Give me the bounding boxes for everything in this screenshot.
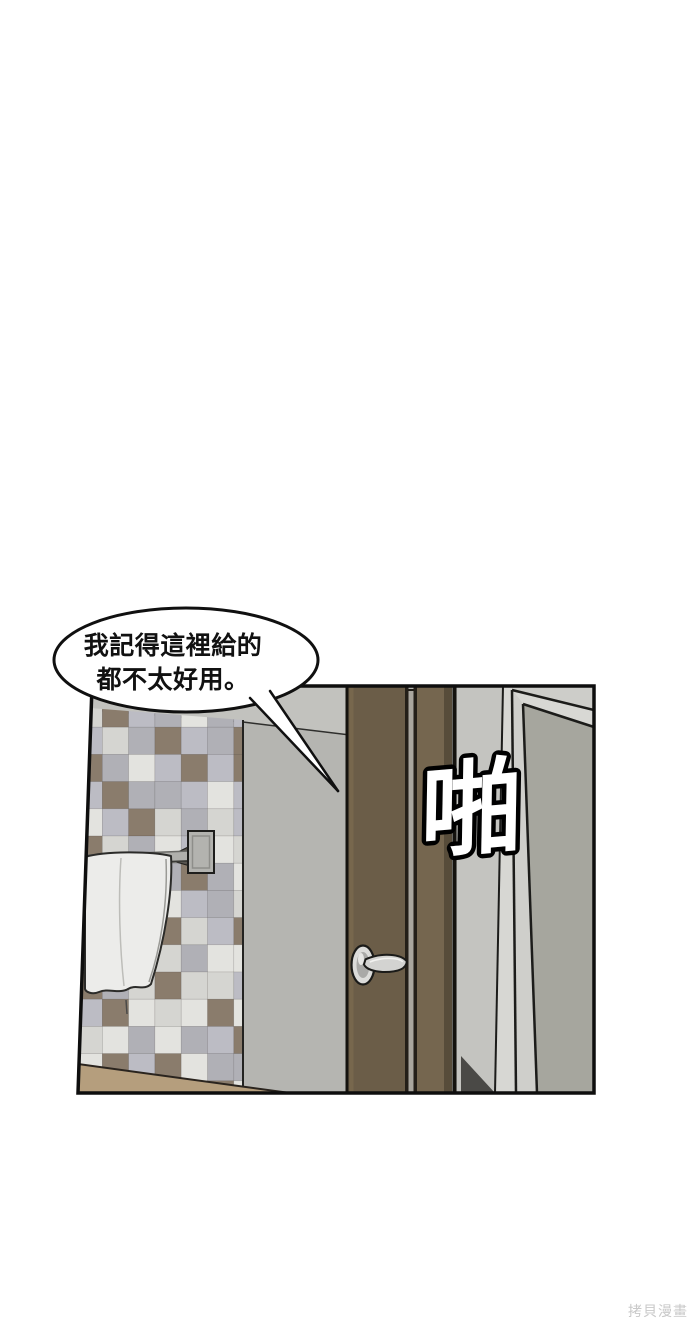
tile bbox=[181, 1108, 207, 1135]
tile bbox=[155, 727, 181, 754]
tile bbox=[181, 999, 207, 1026]
tile bbox=[208, 1026, 234, 1053]
sfx-text: 啪 bbox=[420, 746, 524, 874]
tile bbox=[181, 890, 207, 917]
tile bbox=[155, 999, 181, 1026]
tile bbox=[102, 727, 128, 754]
tile bbox=[181, 754, 207, 781]
tile bbox=[181, 1054, 207, 1081]
tile bbox=[155, 1026, 181, 1053]
door bbox=[347, 686, 455, 1093]
tile bbox=[208, 890, 234, 917]
door-frame-edge bbox=[444, 686, 452, 1093]
tile bbox=[208, 918, 234, 945]
tile bbox=[102, 999, 128, 1026]
tile bbox=[129, 782, 155, 809]
tile bbox=[129, 754, 155, 781]
open-doorway bbox=[457, 686, 594, 1093]
door-frame-strip bbox=[417, 686, 444, 1093]
tile bbox=[102, 1026, 128, 1053]
tile bbox=[181, 945, 207, 972]
comic-page: 啪 我記得這裡給的 都不太好用。 拷貝漫畫 bbox=[0, 0, 690, 1339]
tile bbox=[208, 999, 234, 1026]
tile bbox=[102, 754, 128, 781]
tile bbox=[181, 782, 207, 809]
tile bbox=[129, 727, 155, 754]
tile bbox=[129, 999, 155, 1026]
tile bbox=[155, 754, 181, 781]
panel-interior: 啪 bbox=[76, 686, 596, 1135]
door-leaf-highlight bbox=[350, 686, 354, 1093]
tile bbox=[208, 782, 234, 809]
speech-line-1: 我記得這裡給的 bbox=[41, 629, 305, 663]
tile bbox=[155, 1108, 181, 1135]
door-gap-light bbox=[409, 690, 414, 1093]
door-handle-highlight bbox=[358, 953, 364, 965]
tile bbox=[208, 1108, 234, 1135]
tile bbox=[181, 972, 207, 999]
tile bbox=[129, 1108, 155, 1135]
tile bbox=[129, 809, 155, 836]
tile bbox=[234, 1108, 260, 1135]
speech-bubble-text: 我記得這裡給的 都不太好用。 bbox=[41, 629, 305, 697]
tile bbox=[155, 809, 181, 836]
tile bbox=[208, 727, 234, 754]
watermark: 拷貝漫畫 bbox=[628, 1301, 688, 1321]
tile bbox=[102, 782, 128, 809]
tile bbox=[208, 1054, 234, 1081]
tile bbox=[102, 809, 128, 836]
tile bbox=[208, 945, 234, 972]
tile bbox=[155, 782, 181, 809]
speech-line-2: 都不太好用。 bbox=[41, 663, 305, 697]
door-leaf bbox=[347, 686, 405, 1093]
towel-crease bbox=[126, 1000, 127, 1014]
tile bbox=[129, 1026, 155, 1053]
tile bbox=[208, 754, 234, 781]
tile bbox=[181, 1026, 207, 1053]
tile bbox=[102, 1108, 128, 1135]
tile bbox=[155, 972, 181, 999]
tile bbox=[181, 918, 207, 945]
tile bbox=[76, 1108, 102, 1135]
tile bbox=[181, 727, 207, 754]
door-gap-line bbox=[414, 686, 418, 1093]
door-gap-line bbox=[405, 686, 409, 1093]
tile bbox=[208, 972, 234, 999]
